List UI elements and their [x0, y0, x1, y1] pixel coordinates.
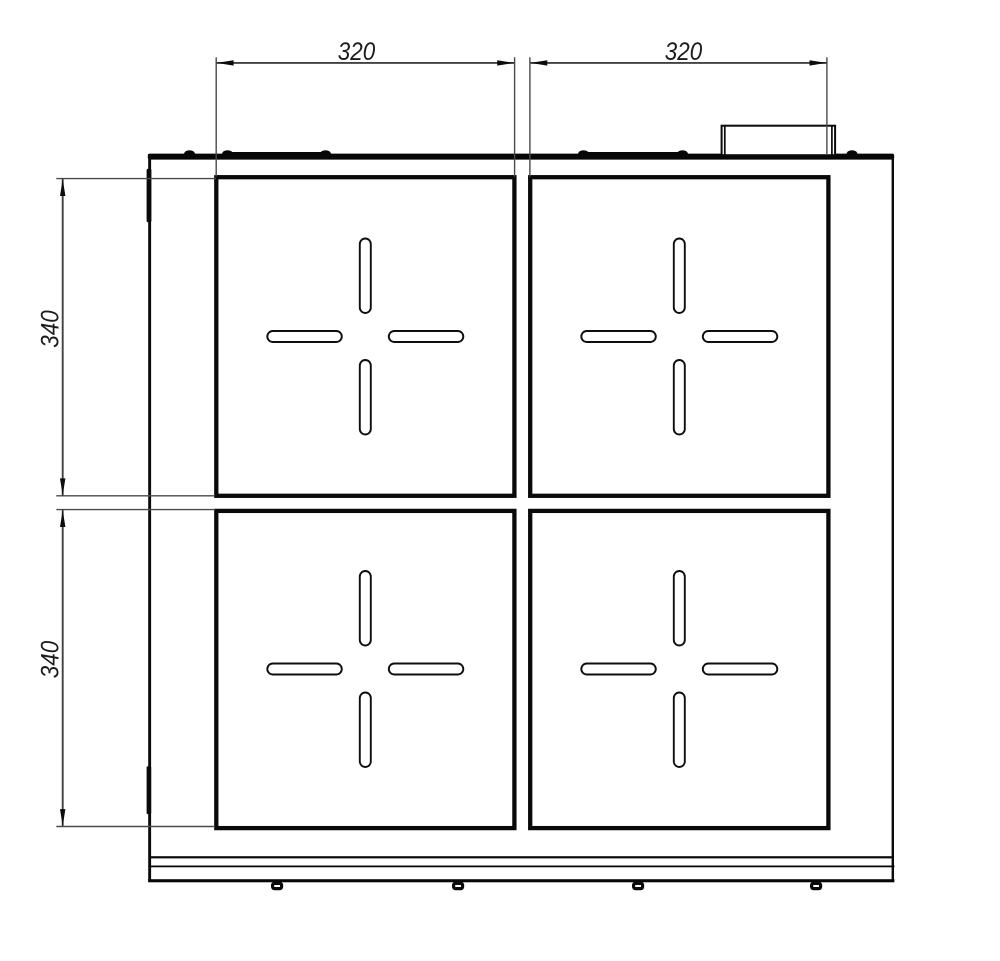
- svg-text:340: 340: [37, 310, 65, 347]
- svg-text:320: 320: [665, 38, 702, 66]
- svg-text:320: 320: [338, 38, 375, 66]
- svg-text:340: 340: [37, 641, 65, 678]
